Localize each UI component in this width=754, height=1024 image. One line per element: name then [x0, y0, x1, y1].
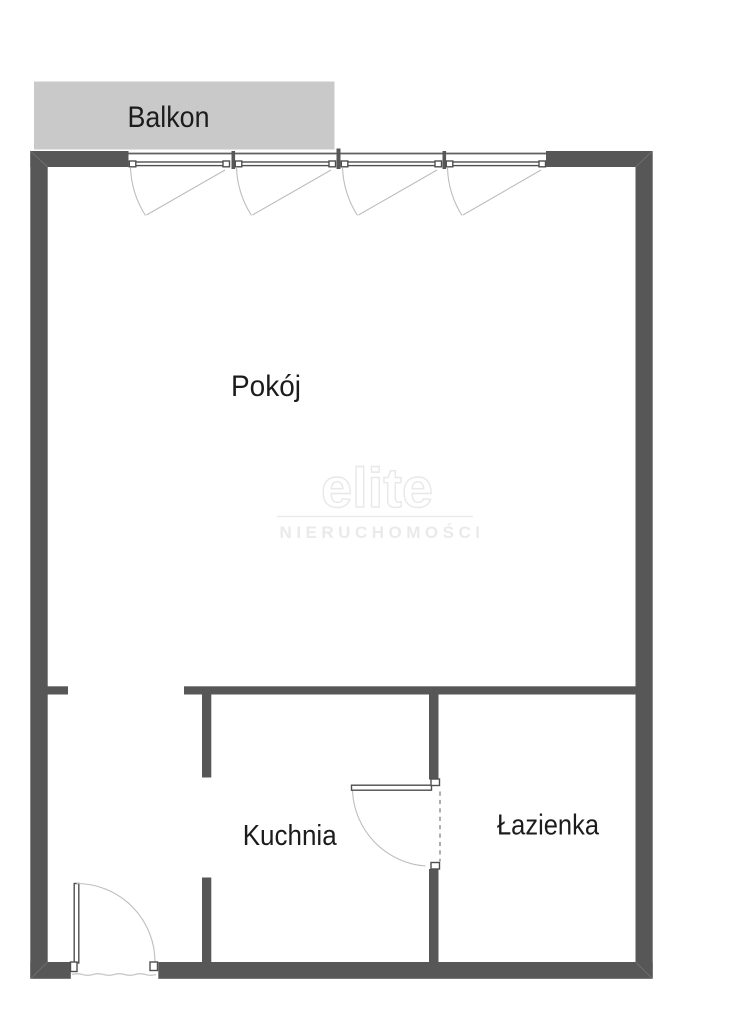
svg-text:elite: elite — [321, 456, 433, 519]
svg-text:Kuchnia: Kuchnia — [243, 820, 338, 852]
svg-text:NIERUCHOMOŚCI: NIERUCHOMOŚCI — [280, 523, 485, 542]
svg-text:Łazienka: Łazienka — [497, 810, 600, 842]
svg-text:Pokój: Pokój — [231, 370, 301, 403]
svg-text:Balkon: Balkon — [128, 101, 210, 134]
